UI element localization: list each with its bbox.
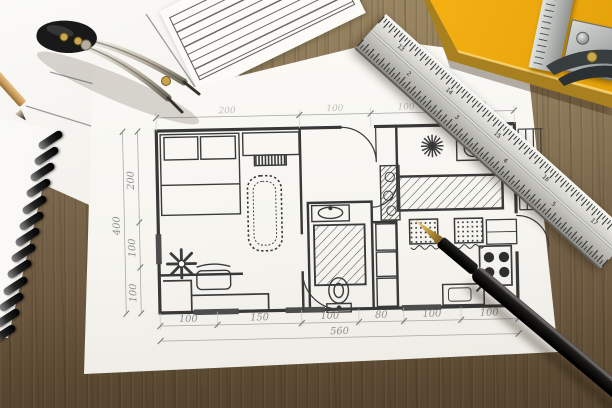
dim-bottom-1: 100 — [179, 314, 198, 325]
bathroom-symbols — [312, 205, 367, 313]
caliper-jaws — [500, 0, 612, 120]
photo-scene: 100 150 100 80 100 100 560 200 100 100 4… — [0, 0, 612, 408]
rug-symbol — [247, 175, 282, 251]
kitchen-counter-symbol — [397, 175, 503, 211]
ruler-number: 5 — [550, 201, 557, 208]
dim-top-1: 200 — [217, 106, 236, 116]
flower-symbol — [421, 135, 444, 158]
dim-top-3: 100 — [398, 102, 416, 112]
dim-left-1: 200 — [126, 171, 137, 191]
dim-bottom-3: 100 — [320, 311, 339, 322]
shelves-symbol — [376, 224, 398, 307]
cabinet-symbol — [486, 219, 517, 244]
plan-furniture — [160, 127, 518, 315]
desk-chair-symbol — [163, 263, 269, 313]
ruler-number: 3 — [453, 114, 460, 121]
ruler-number: 4 — [501, 158, 508, 165]
compass-hinge — [81, 40, 91, 50]
compass-screw — [60, 33, 68, 41]
ruler-number: 2 — [405, 71, 412, 78]
dim-bottom-5: 100 — [423, 308, 442, 319]
stool-symbol — [454, 218, 484, 249]
dim-bottom-4: 80 — [375, 310, 388, 321]
dim-left-3: 100 — [128, 283, 139, 302]
dim-left-total: 400 — [112, 216, 123, 236]
dim-left-2: 100 — [127, 238, 138, 257]
plant-symbol — [167, 249, 196, 278]
compass-shadow — [32, 42, 204, 130]
dim-bottom-total: 560 — [330, 326, 349, 337]
dim-top-2: 100 — [326, 104, 344, 114]
drafting-compass — [18, 8, 218, 130]
bed-symbol — [160, 133, 240, 215]
compass-ferrule — [162, 77, 171, 86]
wardrobe-symbol — [243, 132, 300, 166]
dim-bottom-2: 150 — [250, 312, 269, 323]
